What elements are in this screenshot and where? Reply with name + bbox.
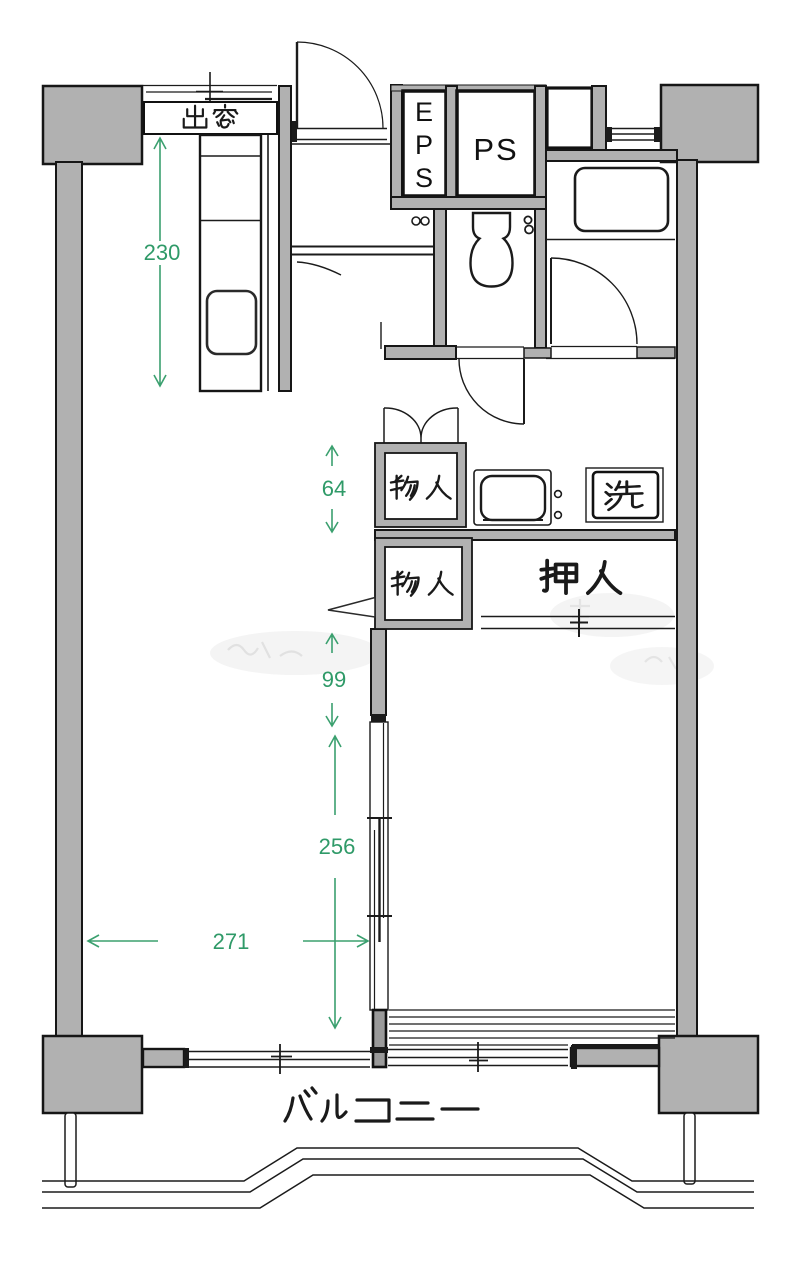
- svg-text:PS: PS: [473, 132, 518, 167]
- svg-text:99: 99: [322, 667, 346, 692]
- svg-text:P: P: [415, 130, 433, 160]
- svg-text:230: 230: [144, 240, 181, 265]
- svg-text:271: 271: [213, 929, 250, 954]
- svg-text:256: 256: [319, 834, 356, 859]
- svg-text:E: E: [415, 97, 433, 127]
- svg-text:64: 64: [322, 476, 346, 501]
- svg-text:S: S: [415, 163, 433, 193]
